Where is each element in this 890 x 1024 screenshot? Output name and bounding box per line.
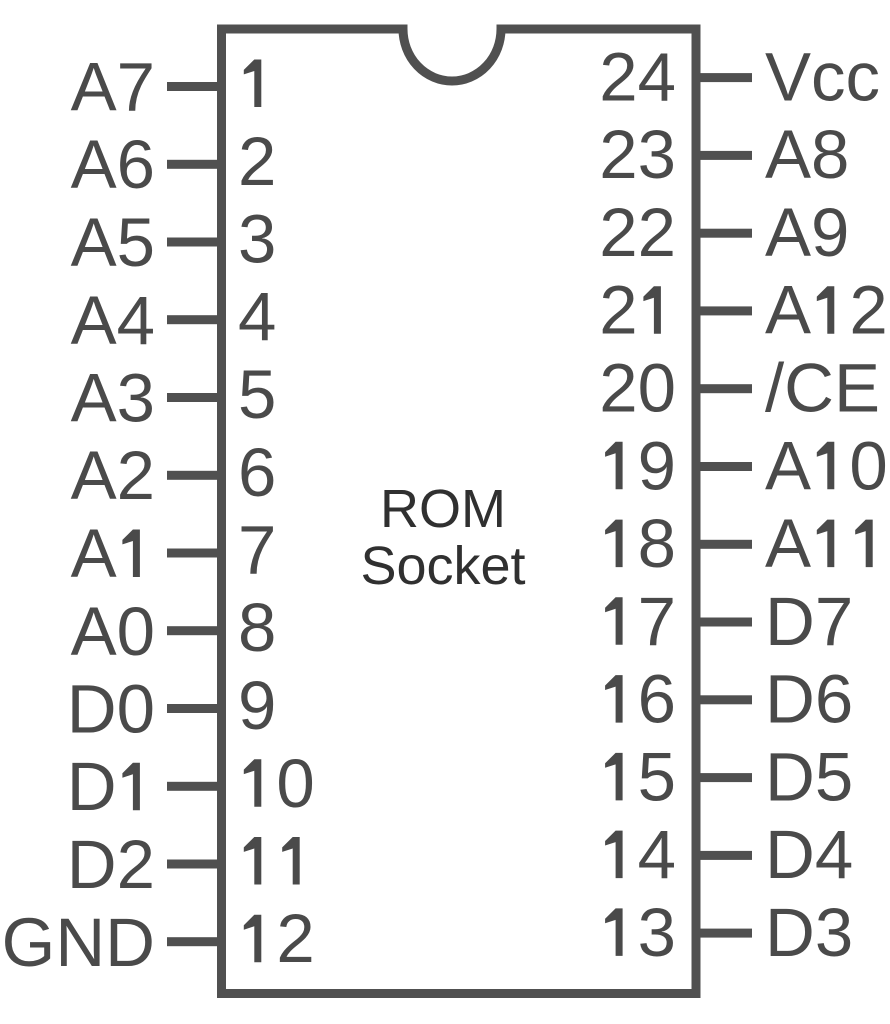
svg-text:5: 5 [638,738,676,815]
svg-text:/CE: /CE [765,350,880,427]
svg-text:6: 6 [238,434,276,511]
svg-text:A: A [765,272,811,349]
svg-text:0: 0 [276,745,314,822]
svg-text:6: 6 [638,661,676,738]
svg-text:A: A [71,515,117,592]
svg-text:A2: A2 [71,437,155,514]
svg-text:8: 8 [638,505,676,582]
svg-text:A5: A5 [71,204,155,281]
svg-text:A9: A9 [765,194,849,271]
svg-text:7: 7 [638,583,676,660]
svg-text:2: 2 [599,194,637,271]
svg-text:D0: D0 [67,671,155,748]
svg-text:4: 4 [638,816,676,893]
svg-text:A7: A7 [71,49,155,126]
svg-text:D2: D2 [67,826,155,903]
svg-text:A0: A0 [71,593,155,670]
svg-text:A3: A3 [71,360,155,437]
svg-text:Socket: Socket [360,536,525,596]
svg-text:3: 3 [238,201,276,278]
svg-text:2: 2 [849,272,887,349]
svg-text:A6: A6 [71,126,155,203]
svg-text:3: 3 [638,116,676,193]
svg-text:A: A [765,505,811,582]
svg-text:D4: D4 [765,816,853,893]
svg-text:ROM: ROM [380,479,506,539]
svg-text:2: 2 [238,123,276,200]
svg-text:2: 2 [599,350,637,427]
svg-text:D3: D3 [765,894,853,971]
svg-text:Vcc: Vcc [765,38,880,115]
svg-text:2: 2 [599,116,637,193]
svg-text:D7: D7 [765,583,853,660]
svg-text:2: 2 [276,900,314,977]
svg-text:2: 2 [599,272,637,349]
svg-text:A4: A4 [71,282,155,359]
svg-text:0: 0 [849,427,887,504]
svg-text:0: 0 [638,350,676,427]
svg-text:7: 7 [238,512,276,589]
svg-text:2: 2 [599,38,637,115]
svg-text:3: 3 [638,894,676,971]
svg-text:A8: A8 [765,116,849,193]
svg-text:GND: GND [2,904,155,981]
svg-text:5: 5 [238,356,276,433]
svg-text:A: A [765,427,811,504]
svg-text:9: 9 [238,667,276,744]
svg-text:D6: D6 [765,661,853,738]
svg-text:2: 2 [638,194,676,271]
svg-text:D5: D5 [765,738,853,815]
svg-text:4: 4 [638,38,676,115]
svg-text:8: 8 [238,589,276,666]
svg-text:9: 9 [638,427,676,504]
svg-text:D: D [67,748,117,825]
svg-text:4: 4 [238,278,276,355]
